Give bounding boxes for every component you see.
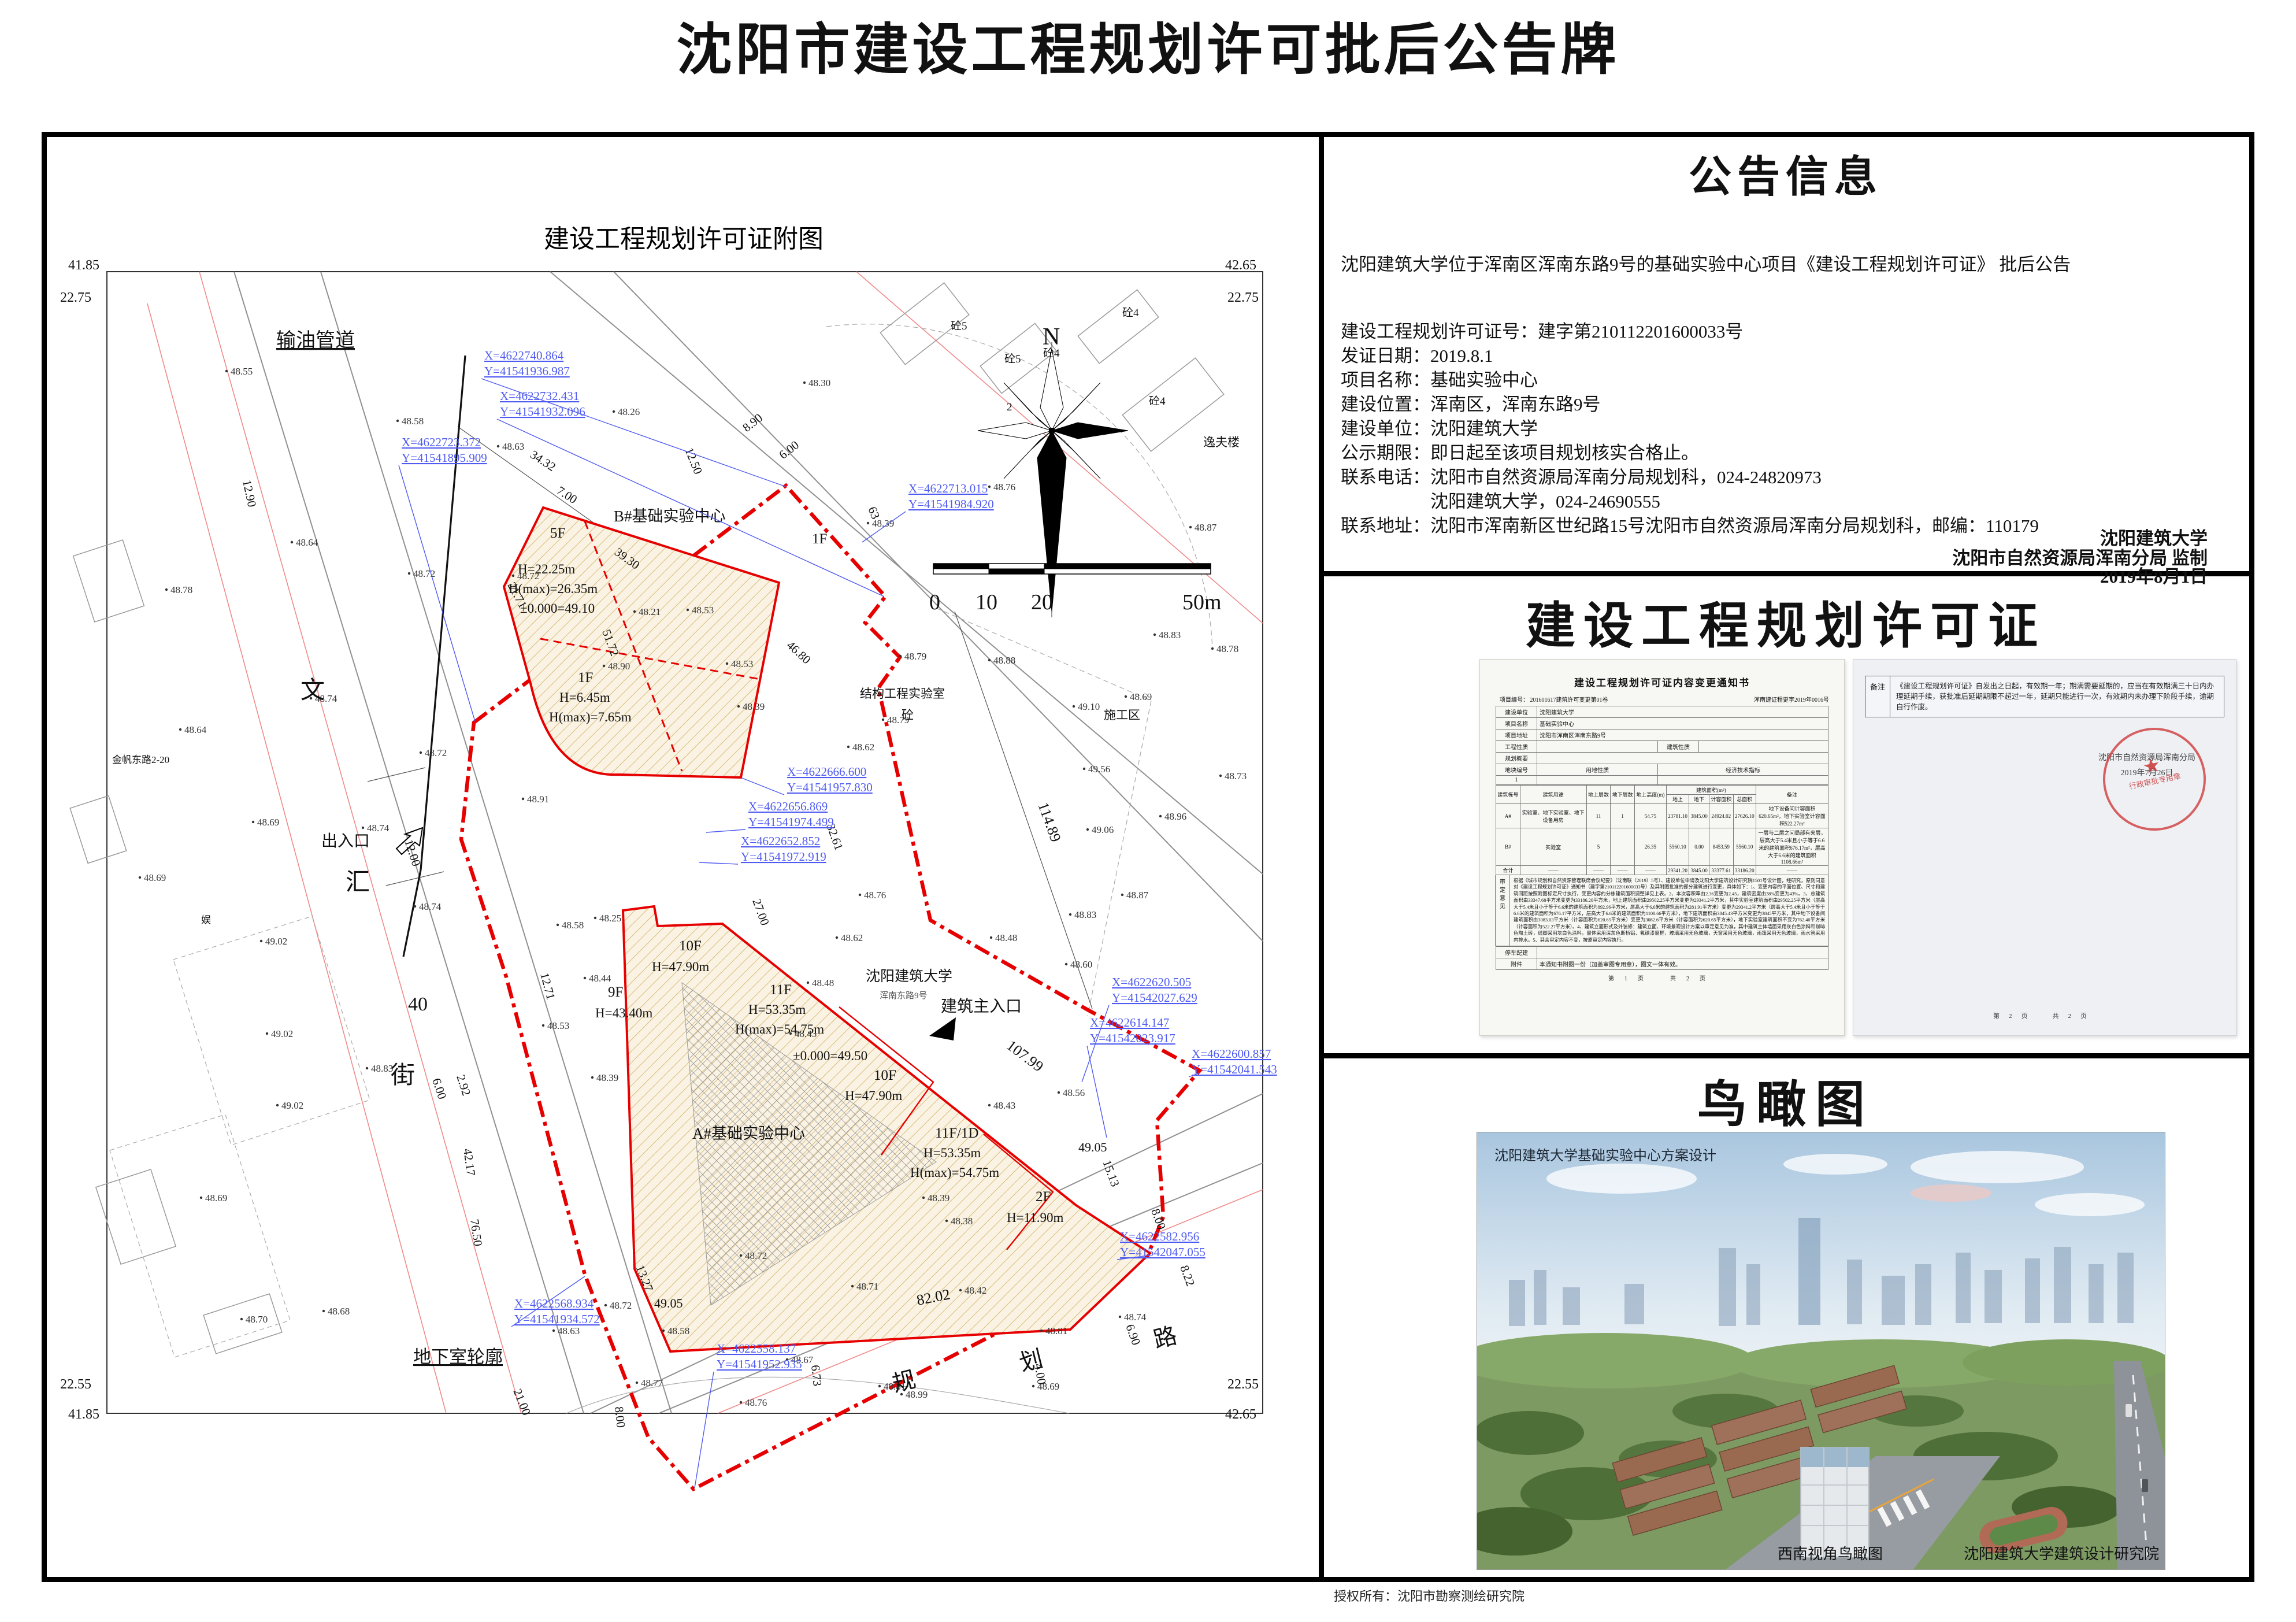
- svg-text:H(max)=7.65m: H(max)=7.65m: [549, 710, 632, 724]
- svg-text:49.05: 49.05: [1078, 1140, 1107, 1154]
- svg-text:11F/1D: 11F/1D: [935, 1125, 978, 1141]
- svg-text:48.76: 48.76: [864, 890, 886, 901]
- svg-text:X=4622740.864: X=4622740.864: [484, 349, 564, 362]
- svg-text:砼5: 砼5: [1004, 353, 1021, 365]
- svg-text:48.55: 48.55: [231, 366, 253, 377]
- svg-text:50m: 50m: [1182, 590, 1222, 614]
- svg-text:H=47.90m: H=47.90m: [845, 1088, 902, 1103]
- permit-remarks-document: 备注 《建设工程规划许可证》自发出之日起，有效期一年；期满需要延期的，应当在有效…: [1853, 659, 2236, 1036]
- svg-text:48.72: 48.72: [745, 1250, 767, 1261]
- svg-text:X=4622732.431: X=4622732.431: [500, 389, 579, 403]
- svg-text:22.75: 22.75: [1227, 290, 1259, 305]
- svg-text:48.25: 48.25: [599, 913, 621, 924]
- announcement-phone-2: 沈阳建筑大学，024-24690555: [1341, 487, 2242, 513]
- svg-text:20: 20: [1031, 590, 1053, 614]
- aerial-section-title: 鸟瞰图: [1329, 1064, 2242, 1136]
- svg-text:X=4622600.857: X=4622600.857: [1192, 1047, 1271, 1061]
- svg-text:48.87: 48.87: [1195, 522, 1217, 533]
- svg-text:9F: 9F: [608, 984, 623, 1000]
- svg-text:Y=41542023.917: Y=41542023.917: [1090, 1031, 1175, 1045]
- svg-text:Y=41542027.629: Y=41542027.629: [1112, 991, 1197, 1005]
- svg-text:42.65: 42.65: [1225, 258, 1256, 273]
- svg-text:街: 街: [391, 1062, 415, 1089]
- svg-text:X=4622652.852: X=4622652.852: [741, 834, 820, 848]
- svg-text:浑南东路9号: 浑南东路9号: [880, 991, 928, 1001]
- svg-text:48.91: 48.91: [527, 794, 549, 805]
- announcement-issue-date: 发证日期：2019.8.1: [1341, 341, 2242, 367]
- svg-text:48.48: 48.48: [812, 977, 834, 988]
- svg-text:41.85: 41.85: [68, 258, 99, 273]
- svg-text:48.90: 48.90: [608, 661, 630, 672]
- svg-text:建筑主入口: 建筑主入口: [941, 997, 1022, 1016]
- svg-text:Y=41541974.499: Y=41541974.499: [748, 815, 834, 829]
- svg-text:48.21: 48.21: [639, 606, 661, 617]
- svg-text:N: N: [1043, 324, 1060, 350]
- svg-text:48.72: 48.72: [425, 747, 447, 758]
- announcement-builder: 建设单位：沈阳建筑大学: [1341, 414, 2242, 440]
- svg-text:40: 40: [408, 994, 428, 1015]
- doc1-fields-table: 建设单位沈阳建筑大学 项目名称基础实验中心 项目地址沈阳市浑南区浑南东路9号 工…: [1496, 706, 1828, 785]
- svg-text:48.81: 48.81: [1045, 1325, 1067, 1336]
- svg-text:H=11.90m: H=11.90m: [1007, 1210, 1063, 1225]
- svg-text:48.62: 48.62: [852, 742, 874, 753]
- svg-text:49.10: 49.10: [1078, 701, 1100, 712]
- svg-text:48.78: 48.78: [170, 584, 192, 595]
- svg-text:22.55: 22.55: [60, 1377, 91, 1392]
- doc2-remark-box: 备注 《建设工程规划许可证》自发出之日起，有效期一年；期满需要延期的，应当在有效…: [1865, 676, 2224, 717]
- tower-building: [1801, 1447, 1869, 1557]
- svg-text:H(max)=54.75m: H(max)=54.75m: [910, 1165, 999, 1180]
- svg-text:49.06: 49.06: [1092, 824, 1114, 835]
- svg-text:A#基础实验中心: A#基础实验中心: [692, 1125, 805, 1142]
- svg-text:48.78: 48.78: [1216, 643, 1238, 654]
- permit-change-notice-document: 建设工程规划许可证内容变更通知书 项目编号： 201601617建筑许可变更第0…: [1479, 659, 1845, 1036]
- svg-text:地下室轮廓: 地下室轮廓: [413, 1347, 503, 1367]
- svg-text:Y=41541952.935: Y=41541952.935: [717, 1357, 802, 1371]
- svg-text:48.64: 48.64: [184, 724, 207, 735]
- svg-text:Y=41542047.055: Y=41542047.055: [1120, 1245, 1206, 1259]
- svg-text:22.75: 22.75: [60, 290, 91, 305]
- svg-text:6.73: 6.73: [808, 1364, 825, 1387]
- announcement-title: 公告信息: [1329, 142, 2242, 204]
- svg-text:48.72: 48.72: [610, 1300, 632, 1311]
- svg-text:金帆东路2-20: 金帆东路2-20: [112, 754, 169, 765]
- doc1-project-no: 项目编号： 201601617建筑许可变更第01卷: [1500, 695, 1608, 703]
- svg-text:砼4: 砼4: [1122, 306, 1139, 319]
- svg-text:22.55: 22.55: [1227, 1377, 1259, 1392]
- svg-text:48.69: 48.69: [257, 817, 279, 828]
- doc1-title: 建设工程规划许可证内容变更通知书: [1480, 675, 1844, 689]
- svg-text:48.79: 48.79: [904, 651, 926, 662]
- aerial-rendering: 沈阳建筑大学基础实验中心方案设计 西南视角鸟瞰图 沈阳建筑大学建筑设计研究院: [1477, 1132, 2165, 1570]
- svg-text:沈阳建筑大学: 沈阳建筑大学: [866, 968, 952, 984]
- scale-bar: [933, 564, 1211, 574]
- svg-text:汇: 汇: [346, 869, 370, 896]
- building-table: 建筑栋号 建筑用途 地上层数 地下层数 地上高度(m) 建筑面积(m²) 备注 …: [1496, 785, 1828, 875]
- svg-text:48.87: 48.87: [1126, 890, 1149, 901]
- svg-text:2: 2: [1007, 401, 1012, 413]
- svg-text:48.76: 48.76: [745, 1397, 767, 1408]
- svg-text:42.65: 42.65: [1225, 1407, 1256, 1422]
- svg-text:49.02: 49.02: [281, 1100, 303, 1111]
- svg-text:Y=41542041.543: Y=41542041.543: [1192, 1062, 1277, 1076]
- svg-text:48.56: 48.56: [1063, 1087, 1085, 1098]
- doc2-page-number: 第2页 共2页: [1853, 1011, 2236, 1020]
- svg-text:48.44: 48.44: [589, 973, 611, 984]
- svg-text:输油管道: 输油管道: [276, 329, 355, 351]
- svg-text:48.62: 48.62: [841, 932, 863, 943]
- svg-text:X=4622614.147: X=4622614.147: [1090, 1016, 1169, 1030]
- aerial-watermark: 沈阳建筑大学基础实验中心方案设计: [1494, 1148, 1716, 1164]
- svg-text:±0.000=49.50: ±0.000=49.50: [793, 1049, 867, 1063]
- svg-text:48.39: 48.39: [928, 1193, 949, 1203]
- svg-text:48.74: 48.74: [1124, 1312, 1147, 1323]
- svg-text:Y=41541932.096: Y=41541932.096: [500, 405, 585, 419]
- svg-text:10F: 10F: [874, 1068, 896, 1083]
- copyright-footer: 授权所有：沈阳市勘察测绘研究院: [1334, 1586, 1525, 1605]
- svg-text:48.71: 48.71: [856, 1281, 878, 1292]
- svg-text:出入口: 出入口: [321, 832, 370, 850]
- svg-text:10: 10: [975, 590, 997, 614]
- svg-text:砼4: 砼4: [1149, 395, 1166, 408]
- svg-text:文: 文: [301, 677, 325, 704]
- svg-text:H=47.90m: H=47.90m: [652, 960, 709, 974]
- svg-text:X=4622656.869: X=4622656.869: [748, 799, 828, 813]
- svg-text:X=4622723.372: X=4622723.372: [402, 435, 481, 449]
- svg-text:1F: 1F: [578, 670, 593, 686]
- svg-text:48.38: 48.38: [951, 1216, 973, 1227]
- svg-text:0: 0: [929, 590, 940, 614]
- svg-text:8.00: 8.00: [612, 1406, 628, 1428]
- svg-text:48.39: 48.39: [743, 701, 765, 712]
- svg-text:Y=41541934.572: Y=41541934.572: [514, 1312, 600, 1326]
- svg-text:48.83: 48.83: [1159, 629, 1181, 640]
- svg-text:48.58: 48.58: [562, 920, 584, 931]
- announcement-phone-1: 联系电话：沈阳市自然资源局浑南分局规划科，024-24820973: [1341, 462, 2242, 488]
- svg-text:49.02: 49.02: [271, 1028, 293, 1039]
- svg-text:48.60: 48.60: [1070, 959, 1092, 970]
- svg-text:X=4622666.600: X=4622666.600: [787, 765, 866, 779]
- svg-text:48.30: 48.30: [808, 377, 830, 388]
- svg-text:逸夫楼: 逸夫楼: [1203, 435, 1240, 449]
- site-plan-map: 建设工程规划许可证附图: [46, 136, 1319, 1578]
- svg-text:48.48: 48.48: [995, 932, 1017, 943]
- svg-text:结构工程实验室: 结构工程实验室: [860, 687, 945, 701]
- aerial-caption-right: 沈阳建筑大学建筑设计研究院: [1964, 1546, 2159, 1562]
- announcement-period: 公示期限：即日起至该项目规划核实合格止。: [1341, 438, 2242, 464]
- svg-text:±0.000=49.10: ±0.000=49.10: [520, 601, 595, 616]
- section-divider-2: [1319, 1053, 2254, 1058]
- svg-text:H=53.35m: H=53.35m: [748, 1002, 806, 1017]
- svg-text:48.58: 48.58: [667, 1325, 689, 1336]
- svg-text:11F: 11F: [770, 982, 792, 998]
- svg-text:48.83: 48.83: [371, 1063, 393, 1074]
- svg-text:48.43: 48.43: [993, 1100, 1015, 1111]
- svg-text:49.02: 49.02: [265, 936, 287, 947]
- svg-text:48.68: 48.68: [328, 1306, 350, 1317]
- svg-text:H=22.25m: H=22.25m: [518, 562, 575, 576]
- svg-text:H(max)=54.75m: H(max)=54.75m: [735, 1022, 824, 1036]
- aerial-caption-left: 西南视角鸟瞰图: [1778, 1546, 1883, 1562]
- svg-text:49.56: 49.56: [1088, 764, 1110, 775]
- page-title: 沈阳市建设工程规划许可批后公告牌: [0, 5, 2296, 85]
- svg-text:X=4622582.956: X=4622582.956: [1120, 1230, 1199, 1243]
- vertical-divider: [1319, 132, 1324, 1582]
- svg-text:48.53: 48.53: [692, 605, 714, 616]
- svg-text:Y=41541972.919: Y=41541972.919: [741, 850, 826, 864]
- svg-text:48.70: 48.70: [246, 1314, 268, 1325]
- svg-text:H=6.45m: H=6.45m: [559, 690, 610, 705]
- svg-text:48.42: 48.42: [965, 1285, 986, 1296]
- svg-text:48.83: 48.83: [1074, 909, 1096, 920]
- svg-text:48.53: 48.53: [731, 658, 753, 669]
- svg-text:2F: 2F: [1036, 1189, 1051, 1205]
- svg-text:48.63: 48.63: [558, 1325, 580, 1336]
- svg-text:5F: 5F: [550, 525, 565, 541]
- review-opinion: 审定意见 根据《城市规划和自然资源管理联席会议纪要》（沈南联（2019）5号）、…: [1495, 875, 1829, 946]
- svg-text:砼: 砼: [902, 708, 914, 722]
- doc1-page-number: 第1页 共2页: [1480, 973, 1844, 982]
- svg-text:48.63: 48.63: [502, 441, 524, 452]
- svg-text:施工区: 施工区: [1104, 708, 1140, 722]
- svg-text:41.85: 41.85: [68, 1407, 99, 1422]
- announcement-project-name: 项目名称：基础实验中心: [1341, 365, 2242, 391]
- svg-text:48.77: 48.77: [641, 1377, 663, 1388]
- official-seal: ★ 行政审批专用章: [2093, 718, 2215, 840]
- svg-text:X=4622713.015: X=4622713.015: [908, 482, 988, 495]
- svg-text:1F: 1F: [812, 531, 827, 547]
- svg-text:48.74: 48.74: [419, 901, 442, 912]
- map-title: 建设工程规划许可证附图: [544, 225, 824, 253]
- svg-text:X=4622558.137: X=4622558.137: [717, 1342, 796, 1356]
- svg-text:H(max)=26.35m: H(max)=26.35m: [509, 582, 598, 596]
- svg-text:X=4622620.505: X=4622620.505: [1112, 975, 1191, 989]
- svg-text:49.05: 49.05: [654, 1296, 683, 1310]
- doc1-bottom-rows: 停车配建 附件本通知书附图一份（加盖审图专用章），图文一体有效。: [1496, 946, 1828, 970]
- announcement-permit-no: 建设工程规划许可证号：建字第210112201600033号: [1341, 317, 2242, 343]
- svg-text:H=53.35m: H=53.35m: [923, 1146, 981, 1160]
- svg-text:48.88: 48.88: [993, 655, 1015, 666]
- svg-text:48.26: 48.26: [618, 406, 640, 417]
- svg-text:48.69: 48.69: [144, 872, 166, 883]
- svg-text:娱: 娱: [201, 914, 211, 925]
- svg-text:H=43.40m: H=43.40m: [595, 1006, 652, 1020]
- svg-text:Y=41541984.920: Y=41541984.920: [908, 497, 994, 511]
- svg-text:48.69: 48.69: [1130, 691, 1152, 702]
- svg-text:48.53: 48.53: [547, 1020, 569, 1031]
- permit-section-title: 建设工程规划许可证: [1329, 585, 2242, 657]
- announcement-location: 建设位置：浑南区，浑南东路9号: [1341, 390, 2242, 416]
- svg-text:Y=41541957.830: Y=41541957.830: [787, 780, 873, 794]
- svg-text:X=4622568.934: X=4622568.934: [514, 1297, 594, 1310]
- svg-text:48.73: 48.73: [1225, 771, 1247, 782]
- svg-text:Y=41541936.987: Y=41541936.987: [484, 364, 570, 378]
- svg-text:48.64: 48.64: [296, 537, 318, 548]
- svg-text:48.96: 48.96: [1164, 811, 1186, 822]
- announcement-sign-date: 2019年8月1日: [1341, 562, 2208, 588]
- svg-text:48.76: 48.76: [993, 482, 1015, 492]
- svg-text:10F: 10F: [679, 938, 702, 954]
- announcement-intro: 沈阳建筑大学位于浑南区浑南东路9号的基础实验中心项目《建设工程规划许可证》 批后…: [1341, 250, 2242, 276]
- svg-text:Y=41541895.909: Y=41541895.909: [402, 451, 487, 465]
- svg-text:48.58: 48.58: [402, 416, 424, 427]
- svg-text:砼5: 砼5: [951, 320, 967, 332]
- svg-text:48.39: 48.39: [596, 1072, 618, 1083]
- svg-text:48.74: 48.74: [367, 823, 390, 834]
- svg-text:48.69: 48.69: [205, 1193, 227, 1203]
- doc1-cert-no: 浑南建证程更字2019年0016号: [1754, 695, 1829, 703]
